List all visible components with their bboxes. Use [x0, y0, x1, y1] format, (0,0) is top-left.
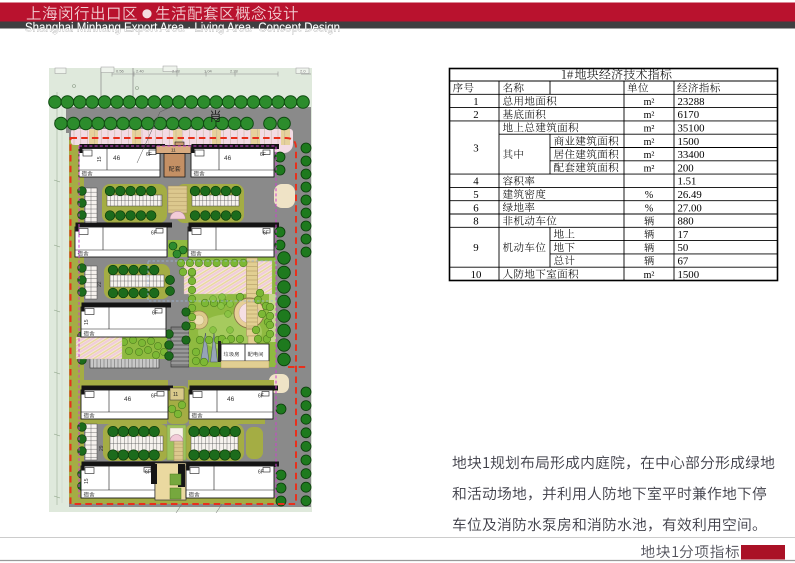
svg-text:50: 50: [678, 242, 689, 254]
svg-text:%: %: [645, 203, 653, 214]
svg-text:35100: 35100: [678, 122, 705, 134]
svg-text:6F: 6F: [258, 470, 264, 476]
svg-text:Shanghai Minhang Export Area ·: Shanghai Minhang Export Area · Living Ar…: [25, 20, 340, 35]
svg-text:1.51: 1.51: [678, 176, 697, 188]
svg-text:6F: 6F: [146, 152, 152, 158]
svg-text:6F: 6F: [145, 470, 151, 476]
svg-text:6F: 6F: [258, 394, 264, 400]
svg-text:6F: 6F: [151, 231, 157, 237]
svg-text:29: 29: [99, 445, 105, 451]
svg-text:10: 10: [471, 269, 482, 281]
svg-text:17: 17: [678, 229, 689, 241]
svg-text:11: 11: [171, 148, 176, 153]
svg-text:27.00: 27.00: [678, 202, 702, 214]
svg-text:2.28: 2.28: [172, 69, 181, 74]
svg-text:m²: m²: [644, 163, 655, 174]
svg-text:4: 4: [473, 176, 479, 188]
svg-text:1500: 1500: [678, 269, 700, 281]
svg-text:3: 3: [473, 142, 478, 154]
svg-text:23288: 23288: [678, 96, 705, 108]
svg-text:15: 15: [84, 319, 90, 325]
svg-text:m²: m²: [644, 137, 655, 148]
svg-text:15: 15: [97, 156, 103, 162]
svg-text:8: 8: [473, 216, 478, 228]
svg-text:m²: m²: [644, 97, 655, 108]
svg-text:6F: 6F: [152, 311, 158, 317]
svg-text:2.28: 2.28: [230, 69, 239, 74]
svg-text:2.0: 2.0: [300, 69, 306, 74]
svg-text:6F: 6F: [151, 394, 157, 400]
svg-text:9: 9: [473, 242, 478, 254]
svg-text:33400: 33400: [678, 149, 705, 161]
svg-text:m²: m²: [644, 150, 655, 161]
svg-text:6170: 6170: [678, 109, 700, 121]
svg-text:2.40: 2.40: [136, 69, 145, 74]
svg-text:1: 1: [473, 96, 478, 108]
svg-text:200: 200: [678, 162, 694, 174]
svg-text:46: 46: [113, 155, 121, 162]
svg-text:1.04: 1.04: [204, 69, 213, 74]
svg-text:15: 15: [84, 478, 90, 484]
svg-text:26.49: 26.49: [678, 189, 702, 201]
svg-text:67: 67: [678, 255, 689, 267]
svg-text:m²: m²: [644, 270, 655, 281]
svg-text:22: 22: [97, 281, 103, 287]
svg-text:46: 46: [227, 396, 235, 403]
svg-text:6: 6: [473, 202, 479, 214]
svg-text:0.56: 0.56: [116, 69, 125, 74]
svg-text:%: %: [645, 190, 653, 201]
svg-text:m²: m²: [644, 123, 655, 134]
svg-text:m²: m²: [644, 110, 655, 121]
svg-text:11: 11: [173, 392, 178, 398]
svg-text:880: 880: [678, 216, 694, 228]
svg-text:46: 46: [124, 396, 132, 403]
svg-text:1500: 1500: [678, 136, 700, 148]
svg-text:5: 5: [473, 189, 478, 201]
svg-text:46: 46: [224, 155, 232, 162]
svg-text:6F: 6F: [263, 231, 269, 237]
svg-text:6F: 6F: [260, 152, 266, 158]
svg-text:2: 2: [473, 109, 478, 121]
